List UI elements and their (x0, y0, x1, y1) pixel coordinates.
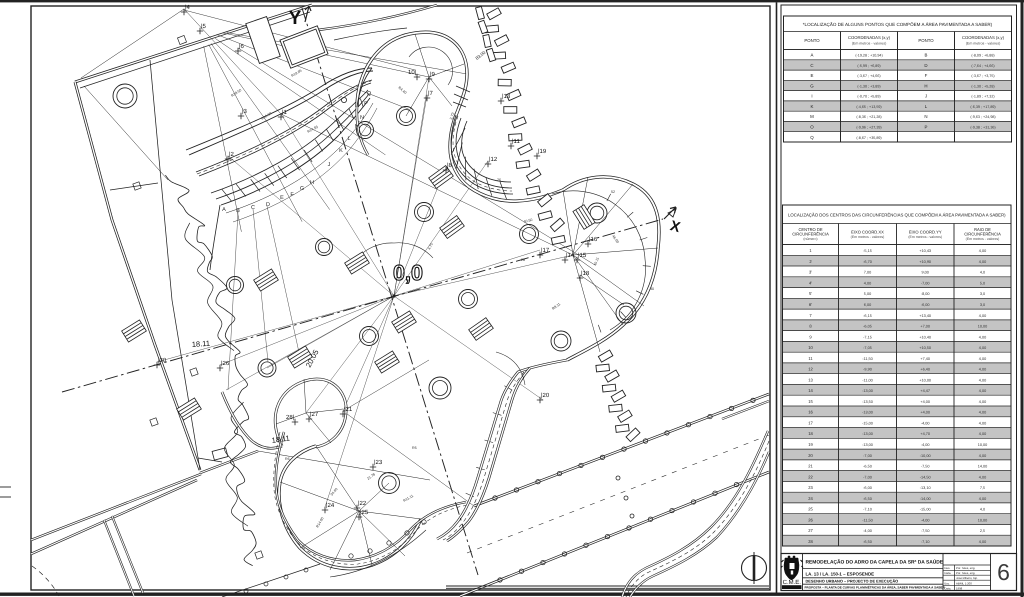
svg-text:PONTO: PONTO (918, 38, 934, 43)
svg-text:A: A (222, 207, 226, 213)
svg-text:20: 20 (808, 453, 813, 458)
svg-text:19: 19 (808, 442, 813, 447)
svg-text:(-8,36 ; +21,28): (-8,36 ; +21,28) (856, 115, 881, 119)
svg-text:4,00: 4,00 (979, 378, 986, 382)
svg-text:|16: |16 (589, 236, 598, 243)
svg-text:J: J (328, 162, 331, 168)
svg-text:-15,00: -15,00 (920, 508, 931, 512)
svg-text:K: K (811, 104, 814, 109)
svg-text:+4,00: +4,00 (920, 411, 930, 415)
svg-text:H: H (310, 180, 314, 186)
svg-text:4,00: 4,00 (979, 346, 986, 350)
svg-text:C: C (810, 63, 813, 68)
svg-text:*LOCALIZAÇÃO DE ALGUNS PONTOS: *LOCALIZAÇÃO DE ALGUNS PONTOS QUE COMPÕE… (803, 22, 993, 27)
svg-text:(-4,65 ; +13,59): (-4,65 ; +13,59) (856, 105, 881, 109)
svg-text:6': 6' (809, 302, 812, 307)
svg-text:+10,00: +10,00 (919, 378, 931, 382)
svg-text:12: 12 (808, 367, 813, 372)
svg-text:D: D (266, 202, 270, 208)
svg-text:F: F (925, 73, 928, 78)
svg-text:23: 23 (808, 485, 813, 490)
svg-text:H: H (924, 83, 927, 88)
svg-text:EIXO COORD.XX: EIXO COORD.XX (851, 230, 884, 235)
svg-text:14: 14 (808, 388, 813, 393)
svg-text:-11,50: -11,50 (862, 518, 872, 522)
svg-text:-7,10: -7,10 (921, 540, 930, 544)
svg-text:-4,00: -4,00 (921, 518, 930, 522)
svg-text:27: 27 (808, 528, 813, 533)
svg-text:R5: R5 (412, 446, 417, 450)
svg-text:4,00: 4,00 (979, 389, 986, 393)
svg-text:26: 26 (497, 178, 501, 182)
svg-text:I: I (811, 94, 812, 99)
svg-text:10|: 10| (408, 69, 417, 76)
svg-text:3': 3' (809, 270, 812, 275)
svg-text:Q: Q (367, 91, 372, 97)
svg-text:|15: |15 (578, 252, 587, 259)
svg-text:(número): (número) (803, 237, 817, 241)
svg-text:-4,00: -4,00 (921, 422, 930, 426)
svg-text:(-3,67 ; +4,66): (-3,67 ; +4,66) (857, 74, 880, 78)
svg-text:José Ribeiro, top.: José Ribeiro, top. (956, 576, 978, 580)
svg-text:(-1,30 ; +3,89): (-1,30 ; +3,89) (857, 84, 880, 88)
svg-text:-7,00: -7,00 (863, 454, 872, 458)
svg-text:4,00: 4,00 (979, 540, 986, 544)
svg-text:-7,50: -7,50 (921, 465, 930, 469)
svg-text:6: 6 (997, 559, 1010, 585)
svg-text:A: A (811, 53, 814, 58)
svg-text:-11,50: -11,50 (862, 357, 872, 361)
svg-text:|24: |24 (326, 502, 335, 509)
svg-text:4,00: 4,00 (979, 497, 986, 501)
svg-text:|20: |20 (541, 392, 550, 399)
svg-text:|5: |5 (201, 23, 207, 30)
svg-text:(-1,30 ; +5,28): (-1,30 ; +5,28) (971, 84, 994, 88)
svg-text:-7,50: -7,50 (921, 529, 930, 533)
svg-text:11: 11 (808, 356, 813, 361)
svg-text:7,00: 7,00 (864, 271, 871, 275)
svg-text:(-19,28 ; +10,94): (-19,28 ; +10,94) (855, 54, 882, 58)
svg-text:4,00: 4,00 (979, 432, 986, 436)
svg-text:G: G (300, 186, 304, 192)
svg-text:2,5: 2,5 (980, 529, 985, 533)
svg-text:13: 13 (808, 377, 813, 382)
svg-text:4,0: 4,0 (980, 508, 985, 512)
svg-text:K: K (339, 148, 343, 154)
svg-text:ABRIL 1:200: ABRIL 1:200 (956, 581, 972, 585)
svg-text:CIRCUNFERÊNCIA: CIRCUNFERÊNCIA (792, 232, 829, 237)
svg-text:3,0: 3,0 (980, 292, 985, 296)
svg-text:(Em metros - valores): (Em metros - valores) (966, 237, 1000, 241)
svg-text:LOCALIZAÇÃO DOS CENTROS DAS CI: LOCALIZAÇÃO DOS CENTROS DAS CIRCUNFERÊNC… (788, 213, 1006, 218)
svg-text:-7,05: -7,05 (863, 346, 872, 350)
svg-text:4,00: 4,00 (979, 314, 986, 318)
svg-text:E: E (280, 195, 284, 201)
svg-text:E: E (811, 73, 814, 78)
svg-text:10,00: 10,00 (978, 443, 988, 447)
svg-text:C.M.E.: C.M.E. (783, 579, 802, 586)
svg-text:-14,00: -14,00 (920, 497, 931, 501)
svg-text:(-9,96 ; +27,39): (-9,96 ; +27,39) (856, 126, 881, 130)
svg-text:-7,15: -7,15 (863, 335, 872, 339)
svg-text:4,00: 4,00 (979, 475, 986, 479)
svg-text:-6,70: -6,70 (863, 260, 872, 264)
svg-text:|27: |27 (310, 411, 319, 418)
svg-text:4,00: 4,00 (979, 411, 986, 415)
svg-text:|13: |13 (502, 93, 511, 100)
svg-text:5': 5' (809, 291, 812, 296)
svg-text:-11,00: -11,00 (862, 378, 872, 382)
svg-text:(Em metros - valores): (Em metros - valores) (851, 235, 885, 239)
svg-text:-6,50: -6,50 (863, 540, 872, 544)
svg-text:C: C (251, 205, 255, 211)
svg-text:16: 16 (808, 410, 813, 415)
svg-text:18: 18 (808, 431, 813, 436)
svg-text:(-8,67 ; +35,89): (-8,67 ; +35,89) (856, 136, 881, 140)
svg-text:-13,00: -13,00 (862, 432, 873, 436)
svg-text:25: 25 (808, 507, 813, 512)
svg-text:(Em metros - valores): (Em metros - valores) (908, 235, 942, 239)
svg-text:N: N (360, 115, 364, 121)
svg-text:+10,43: +10,43 (919, 249, 931, 253)
svg-text:-13,00: -13,00 (862, 443, 873, 447)
svg-text:(-7,64 ; +4,66): (-7,64 ; +4,66) (971, 64, 994, 68)
svg-text:P: P (364, 101, 368, 107)
svg-text:-6,00: -6,00 (921, 303, 930, 307)
svg-text:-14,50: -14,50 (920, 475, 931, 479)
svg-text:9,00: 9,00 (922, 271, 929, 275)
svg-text:G: G (810, 83, 814, 88)
svg-text:Por. Teles, eng.: Por. Teles, eng. (956, 571, 975, 575)
svg-text:28: 28 (808, 539, 813, 544)
svg-text:-6,50: -6,50 (863, 497, 872, 501)
svg-text:24: 24 (808, 496, 813, 501)
svg-text:O: O (810, 125, 814, 130)
svg-text:(-9,38 ; +31,36): (-9,38 ; +31,36) (970, 126, 995, 130)
svg-text:+7,40: +7,40 (920, 357, 930, 361)
svg-text:(-1,89 ; +7,32): (-1,89 ; +7,32) (971, 95, 994, 99)
svg-text:B: B (925, 53, 928, 58)
svg-text:|3: |3 (242, 108, 248, 115)
svg-text:4,00: 4,00 (979, 422, 986, 426)
svg-text:4,00: 4,00 (979, 249, 986, 253)
svg-text:J: J (925, 94, 927, 99)
svg-text:|22: |22 (358, 500, 367, 507)
svg-text:(-3,67 ; +3,75): (-3,67 ; +3,75) (971, 74, 994, 78)
svg-text:|7: |7 (428, 90, 434, 97)
svg-text:-9,90: -9,90 (863, 368, 872, 372)
svg-text:10: 10 (808, 345, 813, 350)
svg-text:21: 21 (808, 464, 813, 469)
svg-text:-6,00: -6,00 (863, 486, 872, 490)
svg-text:Q: Q (810, 135, 814, 140)
svg-text:|4: |4 (185, 4, 191, 11)
svg-text:3,0: 3,0 (980, 303, 985, 307)
svg-text:4,00: 4,00 (979, 400, 986, 404)
svg-text:|18: |18 (581, 270, 590, 277)
svg-text:M: M (810, 114, 814, 119)
svg-text:Y: Y (289, 8, 302, 29)
svg-text:-13,00: -13,00 (862, 411, 873, 415)
svg-text:10,00: 10,00 (978, 325, 988, 329)
svg-text:4,0: 4,0 (980, 271, 985, 275)
svg-text:LA. 13 / LA. 150-1 – ESPOSEN: LA. 13 / LA. 150-1 – ESPOSENDE (806, 571, 875, 576)
svg-text:EIXO COORD.YY: EIXO COORD.YY (909, 230, 942, 235)
svg-text:|21: |21 (344, 406, 353, 413)
svg-text:Data.: Data. (945, 586, 952, 590)
svg-text:-13,10: -13,10 (920, 486, 931, 490)
svg-text:PONTO: PONTO (804, 38, 820, 43)
svg-text:|25: |25 (360, 509, 369, 516)
svg-text:Por. Teles, eng.: Por. Teles, eng. (956, 566, 975, 570)
svg-text:-4,00: -4,00 (863, 529, 872, 533)
svg-text:4': 4' (809, 281, 812, 286)
svg-text:+10,90: +10,90 (919, 260, 931, 264)
svg-text:0,0: 0,0 (393, 261, 423, 285)
svg-text:|6: |6 (239, 43, 245, 50)
svg-text:28: 28 (521, 258, 525, 262)
svg-text:PROPOSTA – PLANTA DE CURVAS PL: PROPOSTA – PLANTA DE CURVAS PLANIMÉTRICA… (805, 586, 946, 590)
svg-text:|11: |11 (512, 138, 520, 145)
svg-text:-13,50: -13,50 (862, 400, 873, 404)
svg-text:6,00: 6,00 (864, 303, 871, 307)
svg-text:4,00: 4,00 (979, 357, 986, 361)
svg-text:(-5,99 ; +6,89): (-5,99 ; +6,89) (857, 64, 880, 68)
svg-text:-7,00: -7,00 (863, 475, 872, 479)
svg-text:DESENHO URBANO – PROJECTO DE: DESENHO URBANO – PROJECTO DE EXECUÇÃO (806, 578, 899, 583)
svg-text:+4,70: +4,70 (920, 432, 930, 436)
svg-text:+10,40: +10,40 (919, 335, 931, 339)
svg-text:(-6,39 ; +17,89): (-6,39 ; +17,89) (970, 105, 995, 109)
svg-text:REMODELAÇÃO DO ADRO DA CAPELA: REMODELAÇÃO DO ADRO DA CAPELA DA SRª DA … (806, 559, 944, 566)
svg-text:10,00: 10,00 (978, 518, 988, 522)
svg-text:Data.: Data. (945, 571, 952, 575)
svg-text:4,00: 4,00 (864, 282, 871, 286)
svg-text:|26: |26 (221, 360, 230, 367)
svg-text:18.11: 18.11 (192, 339, 211, 349)
svg-text:-8,00: -8,00 (921, 292, 930, 296)
svg-text:4,00: 4,00 (979, 260, 986, 264)
svg-text:+6,40: +6,40 (920, 368, 930, 372)
svg-text:28|: 28| (286, 414, 295, 421)
svg-text:N: N (924, 114, 927, 119)
svg-text:-4,00: -4,00 (921, 443, 930, 447)
svg-text:15: 15 (808, 399, 813, 404)
svg-text:(-9,63 ; +24,98): (-9,63 ; +24,98) (970, 115, 995, 119)
svg-text:|14: |14 (566, 252, 575, 259)
svg-text:+4,47: +4,47 (920, 389, 930, 393)
svg-text:|17: |17 (541, 247, 550, 254)
svg-text:(Em metros - valores): (Em metros - valores) (852, 42, 887, 46)
svg-text:+10,50: +10,50 (919, 346, 931, 350)
svg-text:22: 22 (808, 474, 813, 479)
svg-text:-6,15: -6,15 (863, 314, 872, 318)
svg-text:(-8,09 ; +6,88): (-8,09 ; +6,88) (971, 54, 994, 58)
svg-text:-7,10: -7,10 (863, 508, 872, 512)
svg-text:CIRCUNFERÊNCIA: CIRCUNFERÊNCIA (964, 232, 1001, 237)
svg-text:52: 52 (611, 190, 615, 194)
svg-text:|1: |1 (282, 109, 288, 116)
svg-text:-15,00: -15,00 (862, 422, 873, 426)
svg-text:D: D (924, 63, 927, 68)
svg-text:-6,50: -6,50 (863, 465, 872, 469)
svg-text:(Em metros - valores): (Em metros - valores) (966, 42, 1001, 46)
svg-text:30: 30 (650, 287, 654, 291)
svg-text:L: L (347, 136, 350, 142)
svg-text:|30: |30 (158, 357, 167, 364)
svg-text:+7,00: +7,00 (920, 325, 930, 329)
svg-text:|8: |8 (447, 162, 453, 169)
svg-text:Des.: Des. (945, 566, 951, 570)
svg-text:|12: |12 (489, 156, 498, 163)
svg-text:+4,00: +4,00 (920, 400, 930, 404)
svg-text:14,00: 14,00 (978, 465, 988, 469)
svg-text:P: P (925, 125, 928, 130)
svg-text:7,5: 7,5 (980, 486, 985, 490)
svg-text:|23: |23 (374, 459, 383, 466)
svg-text:COORDENADAS (x,y): COORDENADAS (x,y) (962, 35, 1005, 40)
svg-text:|19: |19 (538, 148, 547, 155)
svg-text:(-0,70 ; +5,89): (-0,70 ; +5,89) (857, 95, 880, 99)
svg-text:|2: |2 (229, 151, 235, 158)
svg-text:-7,00: -7,00 (921, 282, 930, 286)
svg-text:17: 17 (808, 421, 813, 426)
svg-text:-13,00: -13,00 (862, 389, 873, 393)
svg-text:4,00: 4,00 (979, 454, 986, 458)
svg-text:5,00: 5,00 (864, 292, 871, 296)
svg-text:-10,00: -10,00 (920, 454, 931, 458)
svg-text:|9: |9 (430, 71, 436, 78)
svg-text:+13,40: +13,40 (919, 314, 931, 318)
svg-text:B: B (236, 208, 240, 214)
svg-text:R6: R6 (285, 457, 290, 461)
svg-text:5,0: 5,0 (980, 282, 985, 286)
svg-text:26: 26 (808, 517, 813, 522)
svg-text:COORDENADAS (x,y): COORDENADAS (x,y) (848, 35, 891, 40)
svg-text:-6,05: -6,05 (863, 325, 872, 329)
svg-text:Esc.: Esc. (945, 581, 951, 585)
svg-text:1998: 1998 (956, 586, 963, 590)
svg-text:4,00: 4,00 (979, 368, 986, 372)
svg-text:-5,15: -5,15 (863, 249, 872, 253)
svg-text:4,00: 4,00 (979, 335, 986, 339)
